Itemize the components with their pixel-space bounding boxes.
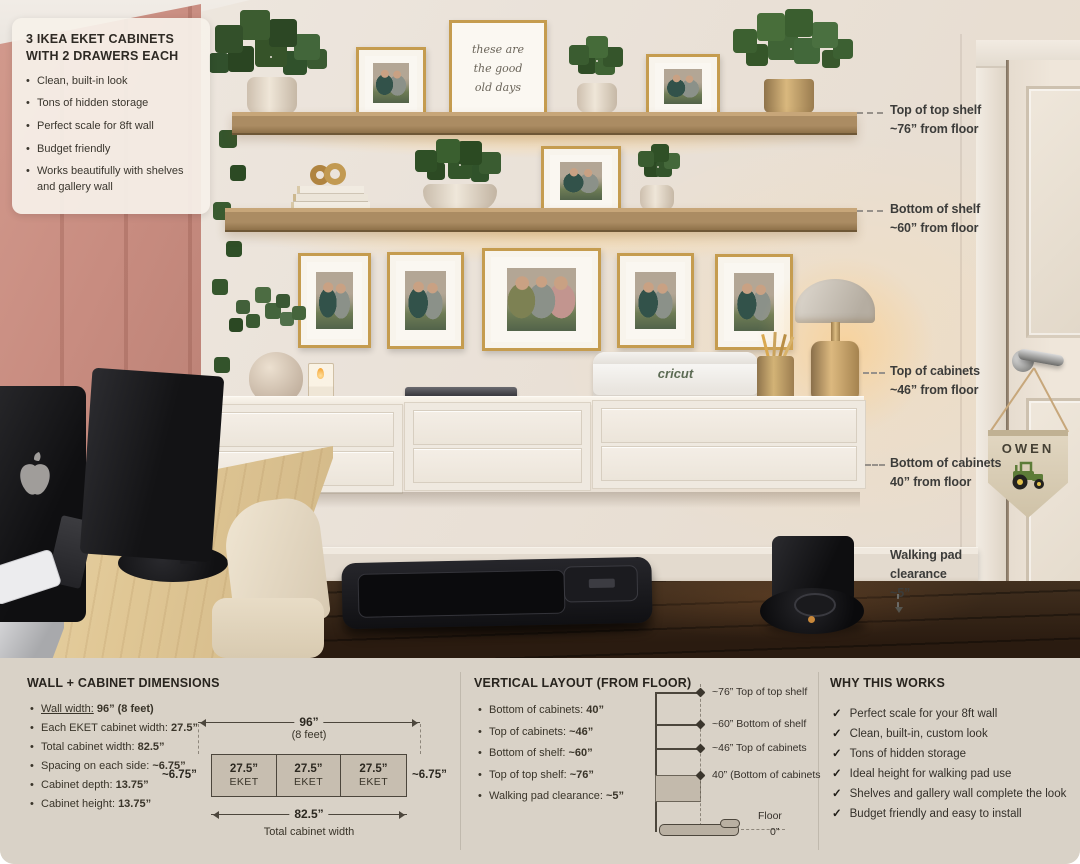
- drawer: [601, 446, 857, 481]
- bullet-label: Wall width:: [41, 703, 94, 715]
- pencils: [760, 334, 794, 358]
- family-photo: [316, 272, 353, 329]
- family-photo: [405, 271, 445, 329]
- vertical-bullet: Top of cabinets: ~46”: [478, 722, 624, 744]
- frame-mat: [365, 56, 417, 110]
- candle-flame: [317, 368, 324, 379]
- info-card-bullets: Clean, built-in look Tons of hidden stor…: [26, 74, 198, 196]
- floor-value: 0”: [770, 826, 779, 838]
- vertical-bullet: Bottom of cabinets: 40”: [478, 700, 624, 722]
- bullet-label: Walking pad clearance:: [489, 790, 603, 802]
- lamp-base: [811, 341, 859, 401]
- tick-76: [696, 688, 706, 698]
- frame-mat: [655, 63, 711, 110]
- bullet-value: ~76”: [570, 769, 594, 781]
- eket-cabinet-2: [404, 402, 591, 491]
- treadmill-console: [563, 565, 638, 603]
- total-width-label: 82.5”: [289, 807, 328, 821]
- tractor-icon: [1008, 460, 1048, 492]
- eket-box-name: EKET: [294, 777, 323, 788]
- info-bullet: Budget friendly: [26, 142, 198, 158]
- dimension-bullet: Each EKET cabinet width: 27.5”: [30, 719, 198, 738]
- annotation-line: Bottom of shelf: [890, 200, 980, 219]
- shelf-photo-frame: [356, 47, 426, 119]
- walking-pad: [341, 557, 652, 629]
- annotation-line: ~60” from floor: [890, 219, 980, 238]
- bullet-value: 40”: [586, 704, 604, 716]
- frame-mat: [491, 257, 592, 342]
- annotation-bottom-shelf: Bottom of shelf ~60” from floor: [890, 200, 980, 238]
- vertical-section-bullets: Bottom of cabinets: 40” Top of cabinets:…: [478, 700, 624, 808]
- annotation-line: ~76” from floor: [890, 120, 981, 139]
- why-item: ✓Tons of hidden storage: [832, 744, 1066, 764]
- annotation-leader: [857, 210, 883, 212]
- annotation-leader: [863, 372, 885, 374]
- info-bullet: Clean, built-in look: [26, 74, 198, 90]
- family-photo: [373, 63, 408, 103]
- check-icon: ✓: [832, 708, 842, 720]
- floating-shelf-bottom: [225, 208, 857, 232]
- bullet-label: Bottom of shelf:: [489, 747, 565, 759]
- panel-divider: [460, 672, 461, 850]
- small-plant: [657, 166, 659, 168]
- bullet-value: 96” (8 feet): [97, 703, 154, 715]
- vacuum-light: [808, 616, 815, 623]
- annotation-line: Top of top shelf: [890, 101, 981, 120]
- vdiagram-cabinet-band: [655, 775, 701, 802]
- dimension-bullet: Cabinet height: 13.75”: [30, 795, 198, 814]
- info-bullet: Perfect scale for 8ft wall: [26, 119, 198, 135]
- wall-section-bullets: Wall width: 96” (8 feet) Each EKET cabin…: [30, 700, 198, 814]
- infographic: OWEN these are the good old days: [0, 0, 1080, 864]
- bullet-value: 82.5”: [138, 741, 165, 753]
- cricut-logo: cricut: [593, 366, 758, 381]
- why-section-list: ✓Perfect scale for your 8ft wall ✓Clean,…: [832, 704, 1066, 824]
- annotation-line: ~5”: [890, 584, 962, 603]
- dimension-bullet: Total cabinet width: 82.5”: [30, 738, 198, 757]
- vdiagram-pad-console: [720, 819, 740, 828]
- eket-box-3: 27.5” EKET: [340, 754, 407, 797]
- annotation-line: Bottom of cabinets: [890, 454, 1001, 473]
- room-photo: OWEN these are the good old days: [0, 0, 1080, 658]
- door-upper-panel: [1026, 86, 1080, 338]
- annotation-top-shelf: Top of top shelf ~76” from floor: [890, 101, 981, 139]
- right-spacing-label: ~6.75”: [412, 769, 447, 781]
- shelf-photo-frame: [646, 54, 720, 119]
- fern-plant: [790, 48, 792, 50]
- vdiagram-label: 40” (Bottom of cabinets: [712, 769, 821, 781]
- why-item: ✓Budget friendly and easy to install: [832, 804, 1066, 824]
- tick-60: [696, 720, 706, 730]
- gold-plant-pot: [764, 79, 814, 113]
- shelf-photo-frame: [541, 146, 621, 216]
- frame-mat: [550, 155, 612, 207]
- bullet-value: 27.5”: [171, 722, 198, 734]
- family-photo: [560, 162, 602, 201]
- lamp-stem: [831, 322, 840, 342]
- annotation-line: 40” from floor: [890, 473, 1001, 492]
- quote-line: these are: [472, 44, 524, 55]
- apple-logo-icon: [16, 452, 56, 500]
- dimension-bullet: Wall width: 96” (8 feet): [30, 700, 198, 719]
- cricut-lid: [593, 352, 758, 364]
- eket-box-width: 27.5”: [294, 764, 322, 776]
- floor-label: Floor: [758, 810, 782, 822]
- drawer: [413, 410, 582, 445]
- vdiagram-label: ~76” Top of top shelf: [712, 686, 807, 698]
- eket-box-name: EKET: [359, 777, 388, 788]
- down-arrow-icon: [897, 594, 899, 607]
- frame-mat: [396, 261, 455, 340]
- why-item-text: Ideal height for walking pad use: [850, 768, 1012, 780]
- pennant-strings: [980, 360, 1080, 440]
- spec-panel: WALL + CABINET DIMENSIONS Wall width: 96…: [0, 658, 1080, 864]
- monitor: [80, 368, 225, 563]
- frame-mat: [626, 262, 685, 339]
- vertical-bullet: Walking pad clearance: ~5”: [478, 786, 624, 808]
- gallery-frame: [387, 252, 464, 349]
- why-section-title: WHY THIS WORKS: [830, 676, 945, 690]
- vdiagram-dashed-axis: [700, 684, 701, 836]
- why-item-text: Clean, built-in, custom look: [850, 728, 988, 740]
- vdiagram-label: ~46” Top of cabinets: [712, 742, 807, 754]
- vertical-bullet: Bottom of shelf: ~60”: [478, 743, 624, 765]
- frame-mat: [307, 262, 362, 339]
- book-stack: [291, 186, 367, 210]
- why-item-text: Shelves and gallery wall complete the lo…: [850, 788, 1067, 800]
- eket-box-width: 27.5”: [359, 764, 387, 776]
- overall-width-sub: (8 feet): [292, 729, 327, 741]
- floating-shelf-top: [232, 112, 857, 135]
- why-item: ✓Clean, built-in, custom look: [832, 724, 1066, 744]
- eket-box-width: 27.5”: [230, 764, 258, 776]
- why-item-text: Tons of hidden storage: [850, 748, 966, 760]
- vase-greenery: [272, 320, 274, 322]
- vdiagram-top-line: [655, 692, 700, 694]
- bullet-label: Cabinet depth:: [41, 779, 113, 791]
- check-icon: ✓: [832, 788, 842, 800]
- info-bullet: Tons of hidden storage: [26, 96, 198, 112]
- quote-print: these are the good old days: [449, 20, 547, 116]
- annotation-top-cabinets: Top of cabinets ~46” from floor: [890, 362, 980, 400]
- vdiagram-line-46: [655, 748, 700, 750]
- info-card-title: 3 IKEA EKET CABINETS WITH 2 DRAWERS EACH: [26, 31, 198, 65]
- treadmill-belt: [358, 570, 566, 618]
- family-photo: [635, 272, 675, 329]
- eket-cabinet-3: [592, 400, 866, 489]
- eket-box-name: EKET: [229, 777, 258, 788]
- plant-pot: [247, 77, 297, 114]
- bullet-label: Cabinet height:: [41, 798, 115, 810]
- quote-line: old days: [475, 82, 521, 93]
- check-icon: ✓: [832, 728, 842, 740]
- bullet-label: Spacing on each side:: [41, 760, 149, 772]
- info-card: 3 IKEA EKET CABINETS WITH 2 DRAWERS EACH…: [12, 18, 210, 214]
- pennant-rod: [988, 430, 1068, 436]
- annotation-line: ~46” from floor: [890, 381, 980, 400]
- eket-box-2: 27.5” EKET: [276, 754, 342, 797]
- bullet-label: Total cabinet width:: [41, 741, 135, 753]
- annotation-line: clearance: [890, 565, 962, 584]
- bullet-value: ~46”: [569, 726, 593, 738]
- check-icon: ✓: [832, 808, 842, 820]
- left-spacing-label: ~6.75”: [162, 769, 197, 781]
- bullet-value: 13.75”: [118, 798, 151, 810]
- annotation-line: Top of cabinets: [890, 362, 980, 381]
- why-item-text: Budget friendly and easy to install: [850, 808, 1022, 820]
- shelf-plant: [459, 164, 461, 166]
- extension-line: [198, 724, 199, 754]
- family-photo: [507, 268, 576, 331]
- why-item-text: Perfect scale for your 8ft wall: [850, 708, 998, 720]
- vdiagram-line-60: [655, 724, 700, 726]
- bullet-label: Bottom of cabinets:: [489, 704, 583, 716]
- tick-46: [696, 744, 706, 754]
- plant-bowl: [423, 184, 497, 211]
- panel-divider: [818, 672, 819, 850]
- check-icon: ✓: [832, 768, 842, 780]
- annotation-line: Walking pad: [890, 546, 962, 565]
- check-icon: ✓: [832, 748, 842, 760]
- bullet-value: 13.75”: [116, 779, 149, 791]
- gallery-frame: [617, 253, 694, 348]
- small-plant: [596, 60, 598, 62]
- cricut-machine: cricut: [593, 352, 758, 400]
- drawer: [601, 408, 857, 443]
- quote-line: the good: [474, 63, 523, 74]
- vertical-section-title: VERTICAL LAYOUT (FROM FLOOR): [474, 676, 691, 690]
- pothos-plant: [270, 56, 272, 58]
- plant-pot: [577, 83, 617, 113]
- overall-width-label: 96”: [294, 715, 323, 729]
- why-item: ✓Shelves and gallery wall complete the l…: [832, 784, 1066, 804]
- vdiagram-left-edge: [655, 692, 657, 832]
- drawer: [196, 412, 394, 447]
- bullet-label: Each EKET cabinet width:: [41, 722, 168, 734]
- bullet-value: ~60”: [569, 747, 593, 759]
- bullet-value: ~5”: [606, 790, 624, 802]
- vertical-bullet: Top of top shelf: ~76”: [478, 765, 624, 787]
- bullet-label: Top of cabinets:: [489, 726, 566, 738]
- annotation-bottom-cabinets: Bottom of cabinets 40” from floor: [890, 454, 1001, 492]
- annotation-walking-pad: Walking pad clearance ~5”: [890, 546, 962, 602]
- eket-box-1: 27.5” EKET: [211, 754, 277, 797]
- info-bullet: Works beautifully with shelves and galle…: [26, 164, 198, 195]
- family-photo: [664, 69, 702, 104]
- why-item: ✓Perfect scale for your 8ft wall: [832, 704, 1066, 724]
- annotation-leader: [865, 464, 885, 466]
- vdiagram-label: ~60” Bottom of shelf: [712, 718, 806, 730]
- treadmill-display: [589, 579, 615, 589]
- vacuum-turret: [794, 593, 836, 617]
- bullet-label: Top of top shelf:: [489, 769, 567, 781]
- total-width-caption: Total cabinet width: [264, 826, 355, 838]
- why-item: ✓Ideal height for walking pad use: [832, 764, 1066, 784]
- extension-line: [420, 724, 421, 754]
- gallery-frame-center: [482, 248, 601, 351]
- chair-seat: [212, 598, 324, 658]
- gallery-frame: [298, 253, 371, 348]
- wall-section-title: WALL + CABINET DIMENSIONS: [27, 676, 220, 690]
- pencil-cup: [757, 356, 794, 400]
- annotation-leader: [857, 112, 883, 114]
- drawer: [413, 448, 582, 483]
